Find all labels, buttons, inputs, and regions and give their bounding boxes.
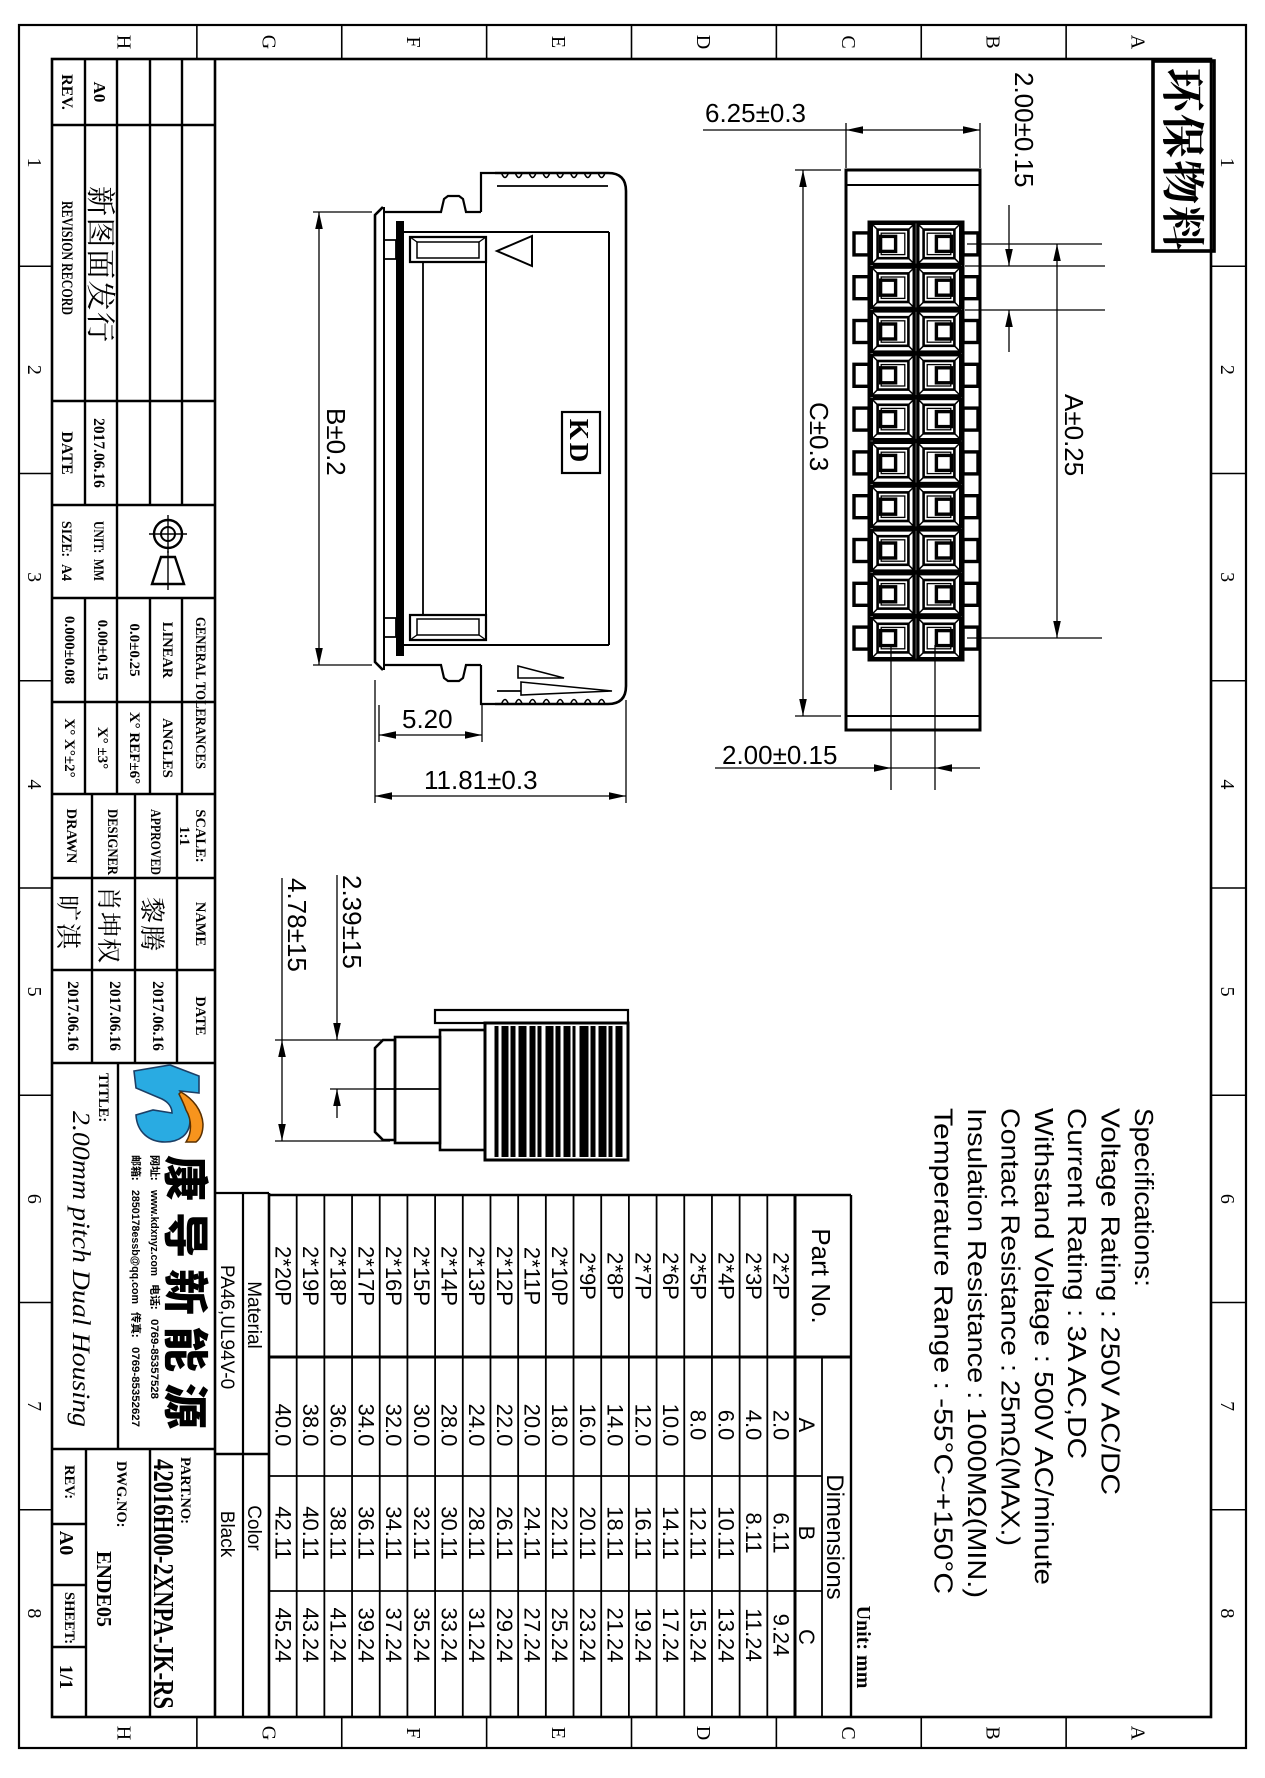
svg-text:14.0: 14.0 bbox=[603, 1404, 628, 1447]
svg-text:38.11: 38.11 bbox=[326, 1506, 351, 1559]
svg-text:6: 6 bbox=[23, 1194, 45, 1204]
svg-text:PART.NO:: PART.NO: bbox=[177, 1457, 193, 1524]
svg-text:1: 1 bbox=[1216, 158, 1238, 168]
svg-text:X° REF±6°: X° REF±6° bbox=[126, 712, 142, 784]
svg-text:2: 2 bbox=[23, 365, 45, 375]
svg-text:8.11: 8.11 bbox=[741, 1512, 766, 1553]
svg-text:KD: KD bbox=[564, 419, 594, 466]
svg-text:APPROVED: APPROVED bbox=[147, 809, 163, 875]
svg-text:29.24: 29.24 bbox=[492, 1607, 517, 1662]
svg-text:2*17P: 2*17P bbox=[353, 1246, 378, 1306]
svg-text:34.11: 34.11 bbox=[381, 1506, 406, 1559]
svg-text:6.25±0.3: 6.25±0.3 bbox=[705, 98, 806, 128]
svg-text:H: H bbox=[112, 35, 134, 49]
svg-text:45.24: 45.24 bbox=[270, 1607, 295, 1662]
svg-text:2017.06.16: 2017.06.16 bbox=[106, 981, 123, 1051]
svg-text:43.24: 43.24 bbox=[298, 1607, 323, 1662]
svg-text:15.24: 15.24 bbox=[686, 1607, 711, 1662]
svg-text:2*13P: 2*13P bbox=[464, 1246, 489, 1306]
svg-text:1:1: 1:1 bbox=[176, 826, 192, 845]
svg-text:2.39±15: 2.39±15 bbox=[337, 875, 367, 969]
svg-text:REVISION RECORD: REVISION RECORD bbox=[58, 201, 75, 315]
svg-text:SCALE:: SCALE: bbox=[192, 809, 208, 862]
svg-text:B±0.2: B±0.2 bbox=[321, 408, 351, 476]
svg-text:2017.06.16: 2017.06.16 bbox=[90, 418, 107, 488]
svg-text:4: 4 bbox=[23, 779, 45, 789]
svg-text:NAME: NAME bbox=[192, 902, 208, 946]
svg-text:Black: Black bbox=[216, 1511, 237, 1558]
svg-text:2.00mm pitch Dual Housing: 2.00mm pitch Dual Housing bbox=[67, 1111, 94, 1427]
svg-text:Withstand Voltage : 500V AC/mi: Withstand Voltage : 500V AC/minute bbox=[1029, 1108, 1059, 1585]
svg-text:0769-85352627: 0769-85352627 bbox=[129, 1347, 141, 1427]
svg-text:40.0: 40.0 bbox=[270, 1404, 295, 1447]
svg-text:2*12P: 2*12P bbox=[492, 1246, 517, 1306]
svg-text:18.0: 18.0 bbox=[547, 1404, 572, 1447]
svg-text:Voltage Rating : 250V AC/DC: Voltage Rating : 250V AC/DC bbox=[1096, 1108, 1126, 1495]
svg-text:6.11: 6.11 bbox=[769, 1512, 794, 1553]
svg-text:35.24: 35.24 bbox=[409, 1607, 434, 1662]
svg-text:23.24: 23.24 bbox=[575, 1607, 600, 1662]
svg-text:2017.06.16: 2017.06.16 bbox=[64, 981, 81, 1051]
svg-text:X° X°±2°: X° X°±2° bbox=[61, 718, 77, 777]
svg-text:3: 3 bbox=[23, 572, 45, 582]
svg-text:25.24: 25.24 bbox=[547, 1607, 572, 1662]
svg-text:PA46,UL94V-0: PA46,UL94V-0 bbox=[216, 1265, 237, 1389]
svg-text:41.24: 41.24 bbox=[326, 1607, 351, 1662]
svg-text:38.0: 38.0 bbox=[298, 1404, 323, 1447]
svg-text:SIZE: A4: SIZE: A4 bbox=[58, 521, 74, 581]
svg-text:A: A bbox=[1127, 35, 1149, 50]
svg-text:4: 4 bbox=[1216, 779, 1238, 789]
svg-text:GENERAL TOLERANCES: GENERAL TOLERANCES bbox=[192, 617, 208, 769]
svg-text:2*14P: 2*14P bbox=[436, 1246, 461, 1306]
svg-text:Specifications:: Specifications: bbox=[1129, 1108, 1159, 1287]
svg-text:8.0: 8.0 bbox=[686, 1410, 711, 1441]
svg-text:D: D bbox=[692, 1726, 714, 1740]
svg-text:A: A bbox=[794, 1418, 819, 1433]
svg-text:B: B bbox=[982, 35, 1004, 48]
svg-text:11.24: 11.24 bbox=[741, 1608, 766, 1661]
svg-text:0.000±0.08: 0.000±0.08 bbox=[61, 616, 77, 684]
svg-text:SHEET:: SHEET: bbox=[61, 1592, 77, 1644]
svg-text:7: 7 bbox=[23, 1401, 45, 1411]
svg-text:A: A bbox=[1127, 1726, 1149, 1741]
svg-text:5: 5 bbox=[1216, 987, 1238, 997]
svg-text:ANGLES: ANGLES bbox=[159, 718, 175, 778]
svg-text:G: G bbox=[257, 1726, 279, 1740]
svg-text:4.78±15: 4.78±15 bbox=[282, 878, 312, 972]
svg-text:24.11: 24.11 bbox=[520, 1506, 545, 1559]
svg-text:1/1: 1/1 bbox=[55, 1665, 76, 1689]
svg-text:0.00±0.15: 0.00±0.15 bbox=[94, 620, 110, 681]
svg-text:2*6P: 2*6P bbox=[658, 1252, 683, 1300]
svg-text:2*10P: 2*10P bbox=[547, 1246, 572, 1306]
svg-text:2*19P: 2*19P bbox=[298, 1246, 323, 1306]
svg-text:22.0: 22.0 bbox=[492, 1404, 517, 1447]
svg-text:42016H00-2XNPA-JK-RS: 42016H00-2XNPA-JK-RS bbox=[147, 1459, 178, 1709]
svg-text:Current Rating : 3A AC,DC: Current Rating : 3A AC,DC bbox=[1062, 1108, 1092, 1459]
svg-text:7: 7 bbox=[1216, 1401, 1238, 1411]
svg-text:C: C bbox=[837, 35, 859, 48]
svg-text:2*16P: 2*16P bbox=[381, 1246, 406, 1306]
svg-text:36.11: 36.11 bbox=[353, 1506, 378, 1559]
svg-text:H: H bbox=[112, 1726, 134, 1740]
svg-text:14.11: 14.11 bbox=[658, 1506, 683, 1559]
svg-text:ENDE05: ENDE05 bbox=[92, 1551, 116, 1627]
svg-text:32.0: 32.0 bbox=[381, 1404, 406, 1447]
svg-text:5.20: 5.20 bbox=[402, 704, 453, 734]
svg-text:D: D bbox=[692, 35, 714, 49]
svg-text:40.11: 40.11 bbox=[298, 1506, 323, 1559]
svg-text:X° ±3°: X° ±3° bbox=[94, 727, 110, 769]
svg-text:UNIT: MM: UNIT: MM bbox=[90, 521, 106, 581]
svg-text:2*15P: 2*15P bbox=[409, 1246, 434, 1306]
svg-text:33.24: 33.24 bbox=[436, 1607, 461, 1662]
svg-text:2*2P: 2*2P bbox=[769, 1252, 794, 1300]
svg-text:2017.06.16: 2017.06.16 bbox=[149, 981, 166, 1051]
svg-text:10.0: 10.0 bbox=[658, 1404, 683, 1447]
svg-text:2*11P: 2*11P bbox=[520, 1247, 545, 1305]
svg-text:A0: A0 bbox=[90, 82, 109, 103]
svg-text:22.11: 22.11 bbox=[547, 1506, 572, 1559]
svg-text:C±0.3: C±0.3 bbox=[804, 402, 834, 471]
svg-text:5: 5 bbox=[23, 987, 45, 997]
svg-text:34.0: 34.0 bbox=[353, 1404, 378, 1447]
svg-text:www.kdxnyz.com: www.kdxnyz.com bbox=[148, 1189, 160, 1276]
svg-text:8: 8 bbox=[23, 1608, 45, 1618]
svg-text:Insulation Resistance : 1000MΩ: Insulation Resistance : 1000MΩ(MIN.) bbox=[962, 1108, 992, 1598]
svg-text:REV:: REV: bbox=[61, 1465, 77, 1499]
svg-text:C: C bbox=[794, 1629, 819, 1645]
svg-text:17.24: 17.24 bbox=[658, 1607, 683, 1662]
svg-text:36.0: 36.0 bbox=[326, 1404, 351, 1447]
svg-text:DESIGNER: DESIGNER bbox=[104, 809, 120, 875]
svg-text:6: 6 bbox=[1216, 1194, 1238, 1204]
svg-text:LINEAR: LINEAR bbox=[159, 622, 175, 679]
svg-text:2: 2 bbox=[1216, 365, 1238, 375]
svg-text:1: 1 bbox=[23, 158, 45, 168]
svg-text:F: F bbox=[402, 1727, 424, 1738]
svg-text:13.24: 13.24 bbox=[713, 1607, 738, 1662]
svg-text:8: 8 bbox=[1216, 1608, 1238, 1618]
svg-text:11.81±0.3: 11.81±0.3 bbox=[424, 765, 538, 795]
svg-text:DATE: DATE bbox=[192, 996, 208, 1035]
svg-text:2*5P: 2*5P bbox=[686, 1252, 711, 1300]
svg-text:E: E bbox=[547, 36, 569, 48]
svg-text:Temperature Range : -55°C~+150: Temperature Range : -55°C~+150°C bbox=[929, 1108, 959, 1594]
svg-text:2.00±0.15: 2.00±0.15 bbox=[722, 740, 837, 770]
svg-text:0.0±0.25: 0.0±0.25 bbox=[126, 623, 142, 676]
svg-text:DRAWN: DRAWN bbox=[63, 809, 79, 864]
svg-text:DATE: DATE bbox=[58, 431, 75, 474]
svg-text:3: 3 bbox=[1216, 572, 1238, 582]
svg-text:TITLE:: TITLE: bbox=[95, 1073, 111, 1122]
svg-text:Color: Color bbox=[243, 1505, 264, 1551]
svg-text:DWG.NO:: DWG.NO: bbox=[113, 1461, 129, 1527]
svg-text:16.11: 16.11 bbox=[630, 1506, 655, 1559]
svg-text:2.0: 2.0 bbox=[769, 1410, 794, 1441]
svg-text:2*18P: 2*18P bbox=[326, 1246, 351, 1306]
svg-text:B: B bbox=[794, 1526, 819, 1541]
svg-text:2*4P: 2*4P bbox=[713, 1252, 738, 1300]
svg-text:12.11: 12.11 bbox=[686, 1506, 711, 1559]
svg-text:F: F bbox=[402, 36, 424, 47]
svg-text:39.24: 39.24 bbox=[353, 1607, 378, 1662]
svg-text:9.24: 9.24 bbox=[769, 1614, 794, 1657]
svg-text:E: E bbox=[547, 1727, 569, 1739]
svg-text:2.00±0.15: 2.00±0.15 bbox=[1009, 72, 1039, 187]
svg-text:12.0: 12.0 bbox=[630, 1404, 655, 1447]
svg-text:42.11: 42.11 bbox=[270, 1506, 295, 1559]
svg-text:19.24: 19.24 bbox=[630, 1607, 655, 1662]
svg-text:20.11: 20.11 bbox=[575, 1506, 600, 1559]
svg-text:C: C bbox=[837, 1726, 859, 1739]
svg-text:B: B bbox=[982, 1726, 1004, 1739]
svg-text:24.0: 24.0 bbox=[464, 1404, 489, 1447]
svg-text:16.0: 16.0 bbox=[575, 1404, 600, 1447]
svg-text:30.11: 30.11 bbox=[436, 1506, 461, 1559]
svg-text:10.11: 10.11 bbox=[713, 1506, 738, 1559]
svg-text:2*7P: 2*7P bbox=[630, 1252, 655, 1300]
svg-text:2*3P: 2*3P bbox=[741, 1252, 766, 1300]
svg-text:Part No.: Part No. bbox=[806, 1228, 836, 1323]
svg-text:18.11: 18.11 bbox=[603, 1506, 628, 1559]
svg-text:20.0: 20.0 bbox=[520, 1404, 545, 1447]
svg-text:2*9P: 2*9P bbox=[575, 1252, 600, 1300]
svg-text:Material: Material bbox=[243, 1281, 264, 1349]
svg-text:Dimensions: Dimensions bbox=[821, 1474, 848, 1599]
svg-text:30.0: 30.0 bbox=[409, 1404, 434, 1447]
svg-text:28.0: 28.0 bbox=[436, 1404, 461, 1447]
svg-text:27.24: 27.24 bbox=[520, 1607, 545, 1662]
svg-text:26.11: 26.11 bbox=[492, 1506, 517, 1559]
svg-text:6.0: 6.0 bbox=[713, 1410, 738, 1441]
svg-text:2*8P: 2*8P bbox=[603, 1252, 628, 1300]
svg-text:Unit: mm: Unit: mm bbox=[852, 1606, 874, 1689]
svg-text:A0: A0 bbox=[55, 1531, 77, 1555]
svg-text:Contact Resistance : 25mΩ(MAX.: Contact Resistance : 25mΩ(MAX.) bbox=[995, 1108, 1025, 1546]
svg-text:0769-85357528: 0769-85357528 bbox=[148, 1319, 160, 1399]
svg-text:37.24: 37.24 bbox=[381, 1607, 406, 1662]
svg-text:32.11: 32.11 bbox=[409, 1506, 434, 1559]
svg-text:4.0: 4.0 bbox=[741, 1410, 766, 1441]
svg-text:28.11: 28.11 bbox=[464, 1506, 489, 1559]
svg-text:31.24: 31.24 bbox=[464, 1607, 489, 1662]
svg-text:2850178essb@qq.com: 2850178essb@qq.com bbox=[129, 1190, 141, 1304]
svg-text:21.24: 21.24 bbox=[603, 1607, 628, 1662]
svg-text:A±0.25: A±0.25 bbox=[1059, 394, 1089, 476]
svg-text:REV.: REV. bbox=[58, 74, 75, 110]
svg-text:2*20P: 2*20P bbox=[270, 1246, 295, 1306]
svg-text:G: G bbox=[257, 35, 279, 49]
